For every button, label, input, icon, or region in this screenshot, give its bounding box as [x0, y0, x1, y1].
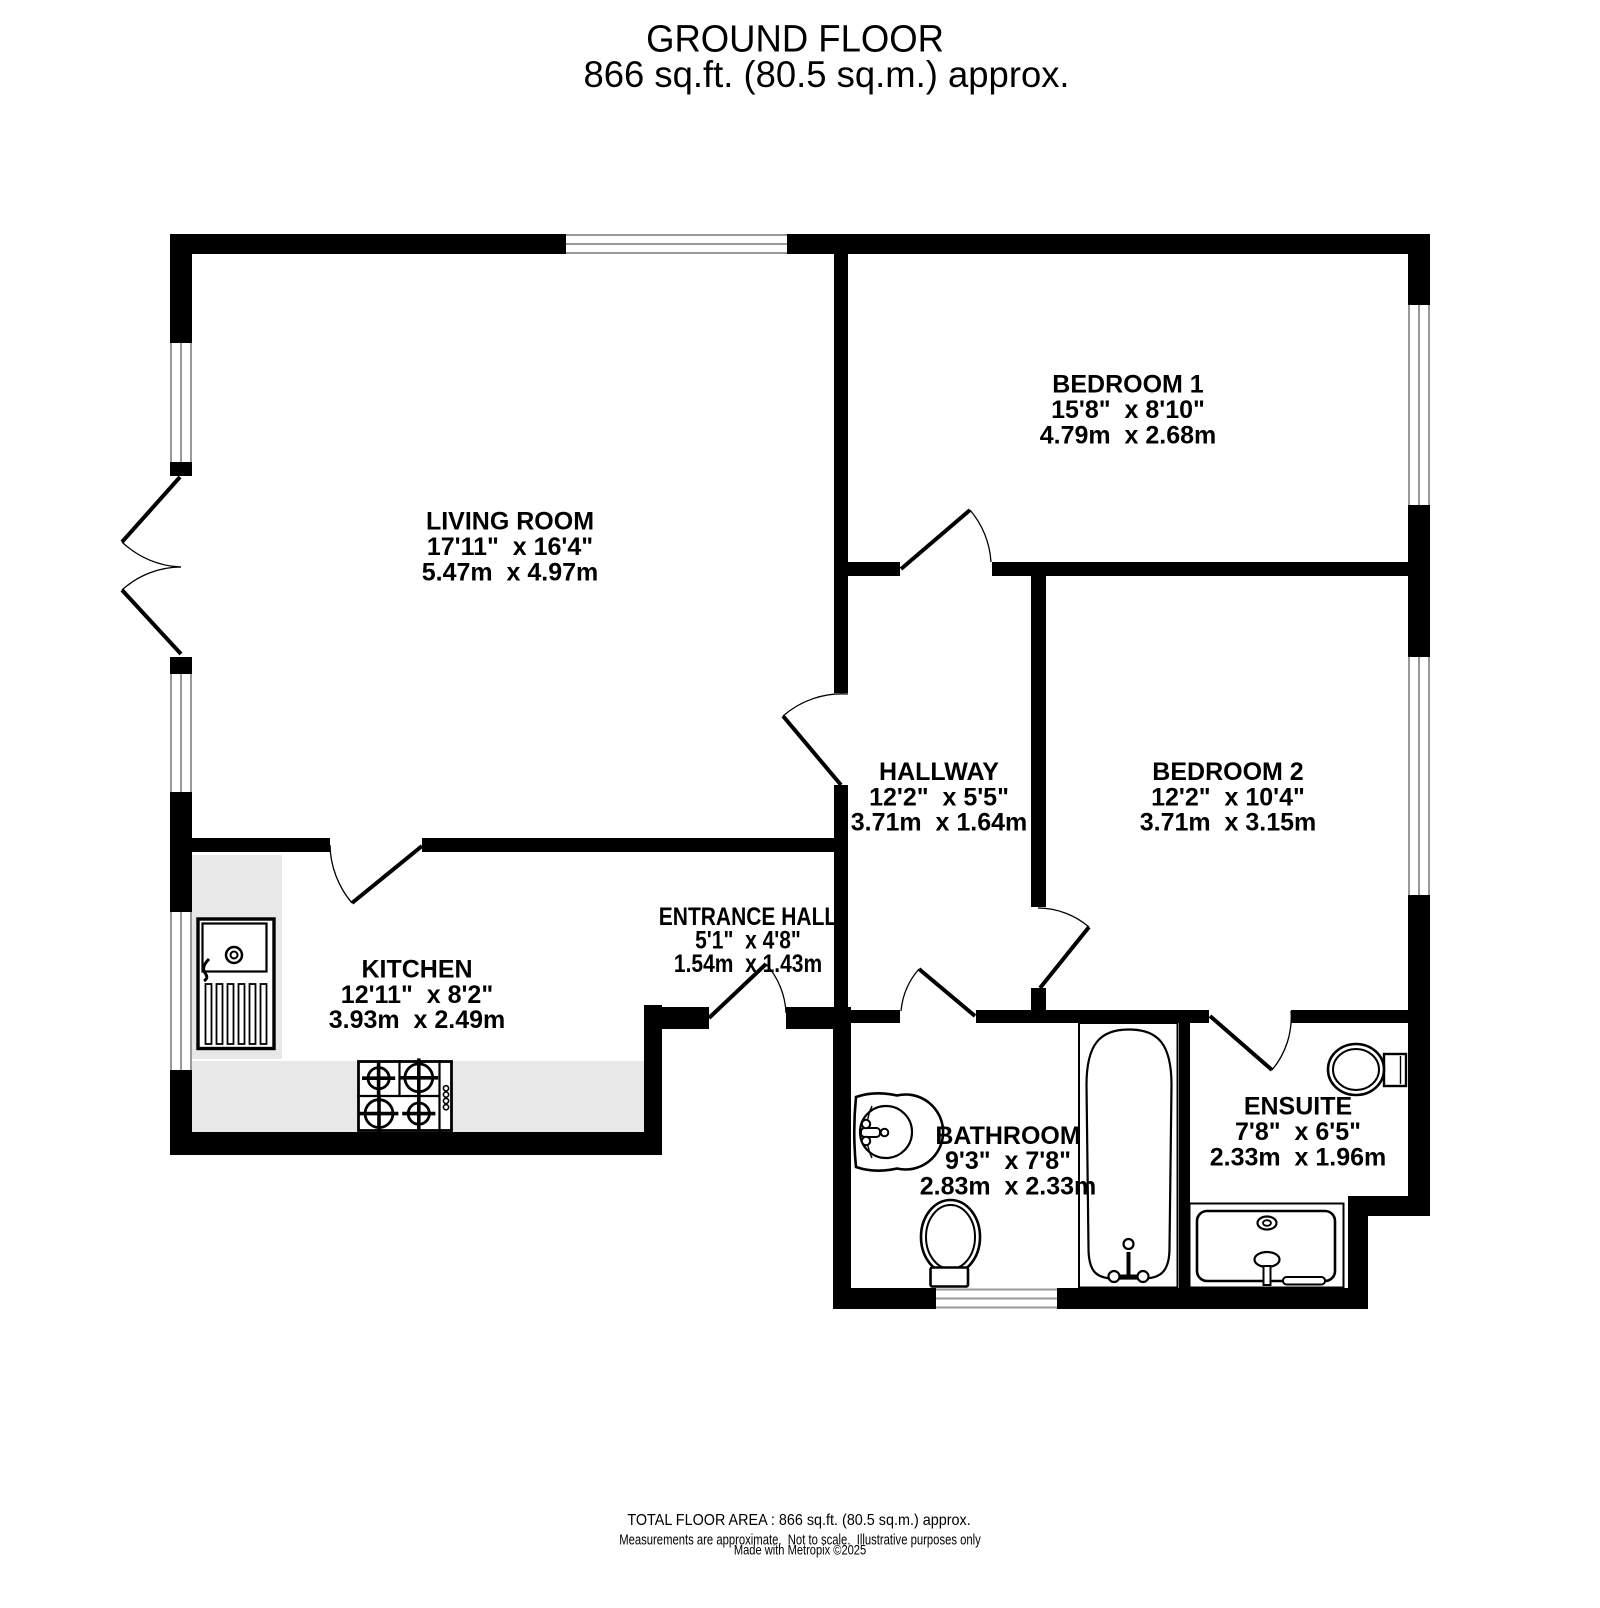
svg-text:12'11" x 8'2": 12'11" x 8'2" [341, 981, 493, 1009]
svg-text:2.83m x 2.33m: 2.83m x 2.33m [920, 1173, 1097, 1201]
svg-text:2.33m x 1.96m: 2.33m x 1.96m [1210, 1144, 1387, 1172]
svg-text:12'2" x 10'4": 12'2" x 10'4" [1151, 784, 1305, 812]
svg-text:ENSUITE: ENSUITE [1244, 1093, 1352, 1121]
svg-text:17'11" x 16'4": 17'11" x 16'4" [427, 533, 593, 561]
svg-text:3.93m x 2.49m: 3.93m x 2.49m [329, 1006, 506, 1034]
svg-text:9'3" x 7'8": 9'3" x 7'8" [945, 1147, 1071, 1175]
svg-text:1.54m x 1.43m: 1.54m x 1.43m [674, 949, 822, 977]
svg-text:7'8" x 6'5": 7'8" x 6'5" [1235, 1118, 1361, 1146]
svg-text:BEDROOM 2: BEDROOM 2 [1152, 758, 1303, 786]
svg-text:15'8" x 8'10": 15'8" x 8'10" [1051, 396, 1205, 424]
svg-text:3.71m x 1.64m: 3.71m x 1.64m [851, 809, 1028, 837]
svg-text:BATHROOM: BATHROOM [935, 1122, 1080, 1150]
svg-text:12'2" x 5'5": 12'2" x 5'5" [869, 784, 1009, 812]
svg-text:TOTAL FLOOR AREA : 866 sq.ft.: TOTAL FLOOR AREA : 866 sq.ft. (80.5 sq.m… [627, 1511, 970, 1529]
svg-text:LIVING ROOM: LIVING ROOM [426, 508, 594, 536]
svg-text:Made with Metropix ©2025: Made with Metropix ©2025 [734, 1542, 866, 1557]
svg-text:4.79m x 2.68m: 4.79m x 2.68m [1040, 422, 1217, 450]
svg-text:866 sq.ft. (80.5 sq.m.) approx: 866 sq.ft. (80.5 sq.m.) approx. [583, 54, 1069, 95]
svg-text:BEDROOM 1: BEDROOM 1 [1052, 371, 1204, 399]
svg-text:5.47m x 4.97m: 5.47m x 4.97m [422, 559, 599, 587]
svg-text:HALLWAY: HALLWAY [879, 758, 999, 786]
svg-text:3.71m x 3.15m: 3.71m x 3.15m [1140, 809, 1317, 837]
svg-text:KITCHEN: KITCHEN [361, 956, 472, 984]
